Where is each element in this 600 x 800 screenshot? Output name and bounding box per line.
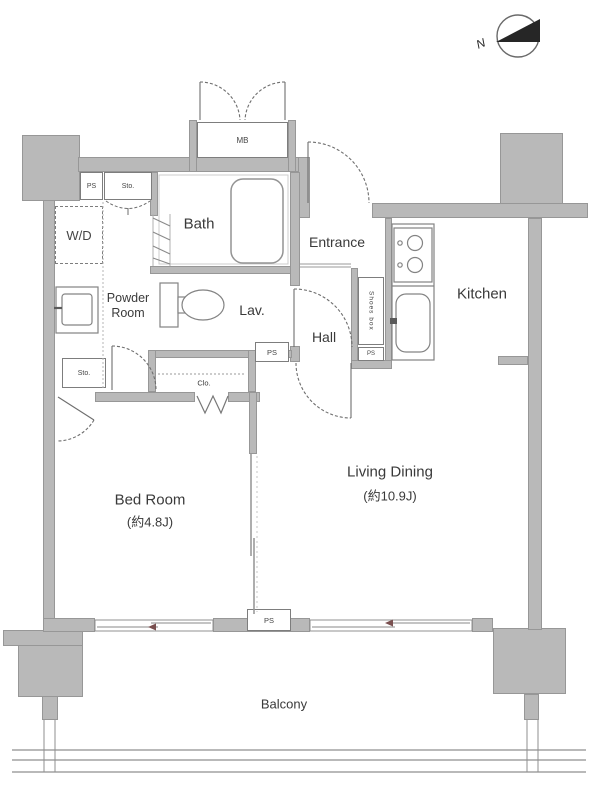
room-label-kitchen: Kitchen [457, 286, 507, 303]
wall-entrance-kitchen [385, 218, 392, 362]
wall-kitchen-stub-right [498, 356, 528, 365]
pipe-space-label: PS [267, 348, 277, 357]
wall-closet-left [148, 350, 156, 392]
wall-mb-jamb-left [189, 120, 197, 172]
room-size-bedroom: (約4.8J) [127, 512, 173, 531]
bath-sliding-door [153, 214, 170, 266]
wall-hall-bottom-right [351, 360, 392, 369]
washer-dryer-space: W/D [55, 206, 103, 264]
kitchen-sink [390, 294, 430, 352]
wall-partition-top [249, 392, 257, 454]
room-label-living-dining: Living Dining [347, 464, 433, 481]
entrance-door-arc [308, 142, 369, 203]
pillar-top-left [22, 135, 80, 201]
balcony-dividers [44, 720, 538, 772]
pipe-space-label: PS [264, 616, 274, 625]
storage-top: Sto. [104, 172, 152, 200]
room-label-lav: Lav. [239, 302, 264, 318]
wall-top-right [372, 203, 588, 218]
pipe-space-top: PS [80, 172, 103, 200]
pipe-space-shoes: PS [358, 347, 384, 361]
storage-label: Sto. [78, 370, 90, 377]
pillar-bottom-left-leg [42, 696, 58, 720]
room-label-entrance: Entrance [309, 234, 365, 250]
storage-bottom: Sto. [62, 358, 106, 388]
pillar-top-right [500, 133, 563, 208]
pipe-space-balcony-wall: PS [247, 609, 291, 631]
pillar-bottom-right-leg [524, 694, 539, 720]
meter-box-label: MB [237, 136, 249, 145]
room-label-balcony: Balcony [261, 697, 307, 712]
pipe-space-label: PS [367, 351, 375, 357]
wall-kitchen-counter-end [392, 352, 434, 360]
stove [394, 228, 432, 282]
window-slide-arrow [385, 620, 393, 627]
sliding-partition [251, 454, 257, 614]
pillar-bottom-left-cap [3, 630, 83, 646]
room-label-bedroom: Bed Room [115, 492, 186, 509]
entrance-step-line [300, 264, 351, 267]
floor-plan: MB PS Sto. W/D Sto. PS Shoes box PS PS B… [0, 0, 600, 800]
shoes-box: Shoes box [358, 277, 384, 345]
bath-inner-outline [159, 175, 288, 264]
wall-bottom-right-stub [472, 618, 493, 632]
room-label-bath: Bath [184, 216, 215, 233]
hall-living-door-arc [296, 363, 351, 418]
wall-right [528, 218, 542, 630]
wall-lav-hall-upper [290, 172, 300, 286]
closet-folding-door [197, 396, 228, 413]
bathtub [231, 179, 283, 263]
shoes-box-label: Shoes box [368, 291, 375, 331]
room-label-closet: Clo. [197, 379, 210, 388]
toilet [160, 283, 224, 327]
mb-double-door [200, 82, 285, 120]
wall-bottom-left-stub [43, 618, 95, 632]
bedroom-door-arc [58, 397, 94, 441]
room-size-living-dining: (約10.9J) [363, 486, 416, 505]
wall-bedroom-top-left [95, 392, 195, 402]
bedroom-window [95, 620, 213, 631]
living-window [310, 620, 472, 632]
compass-north-label: N [474, 35, 488, 51]
wall-mb-jamb-right [288, 120, 296, 172]
pipe-space-label: PS [87, 183, 96, 190]
room-label-hall: Hall [312, 329, 336, 345]
washer-dryer-label: W/D [66, 228, 91, 243]
kitchen-counter [392, 224, 434, 360]
window-slide-arrow [148, 624, 156, 631]
washbasin [54, 287, 98, 333]
wall-hall-shoesbox-left [351, 268, 358, 362]
north-compass-icon: N [474, 15, 540, 57]
pillar-bottom-right [493, 628, 566, 694]
pillar-bottom-left [18, 645, 83, 697]
storage-folding-door [106, 201, 150, 215]
storage-label: Sto. [122, 183, 134, 190]
balcony-railing [12, 750, 586, 772]
meter-box: MB [197, 122, 288, 158]
wall-left [43, 200, 55, 632]
room-label-powder-room: Powder Room [93, 291, 163, 321]
wall-bath-lav [150, 266, 292, 274]
pipe-space-lav: PS [255, 342, 289, 362]
